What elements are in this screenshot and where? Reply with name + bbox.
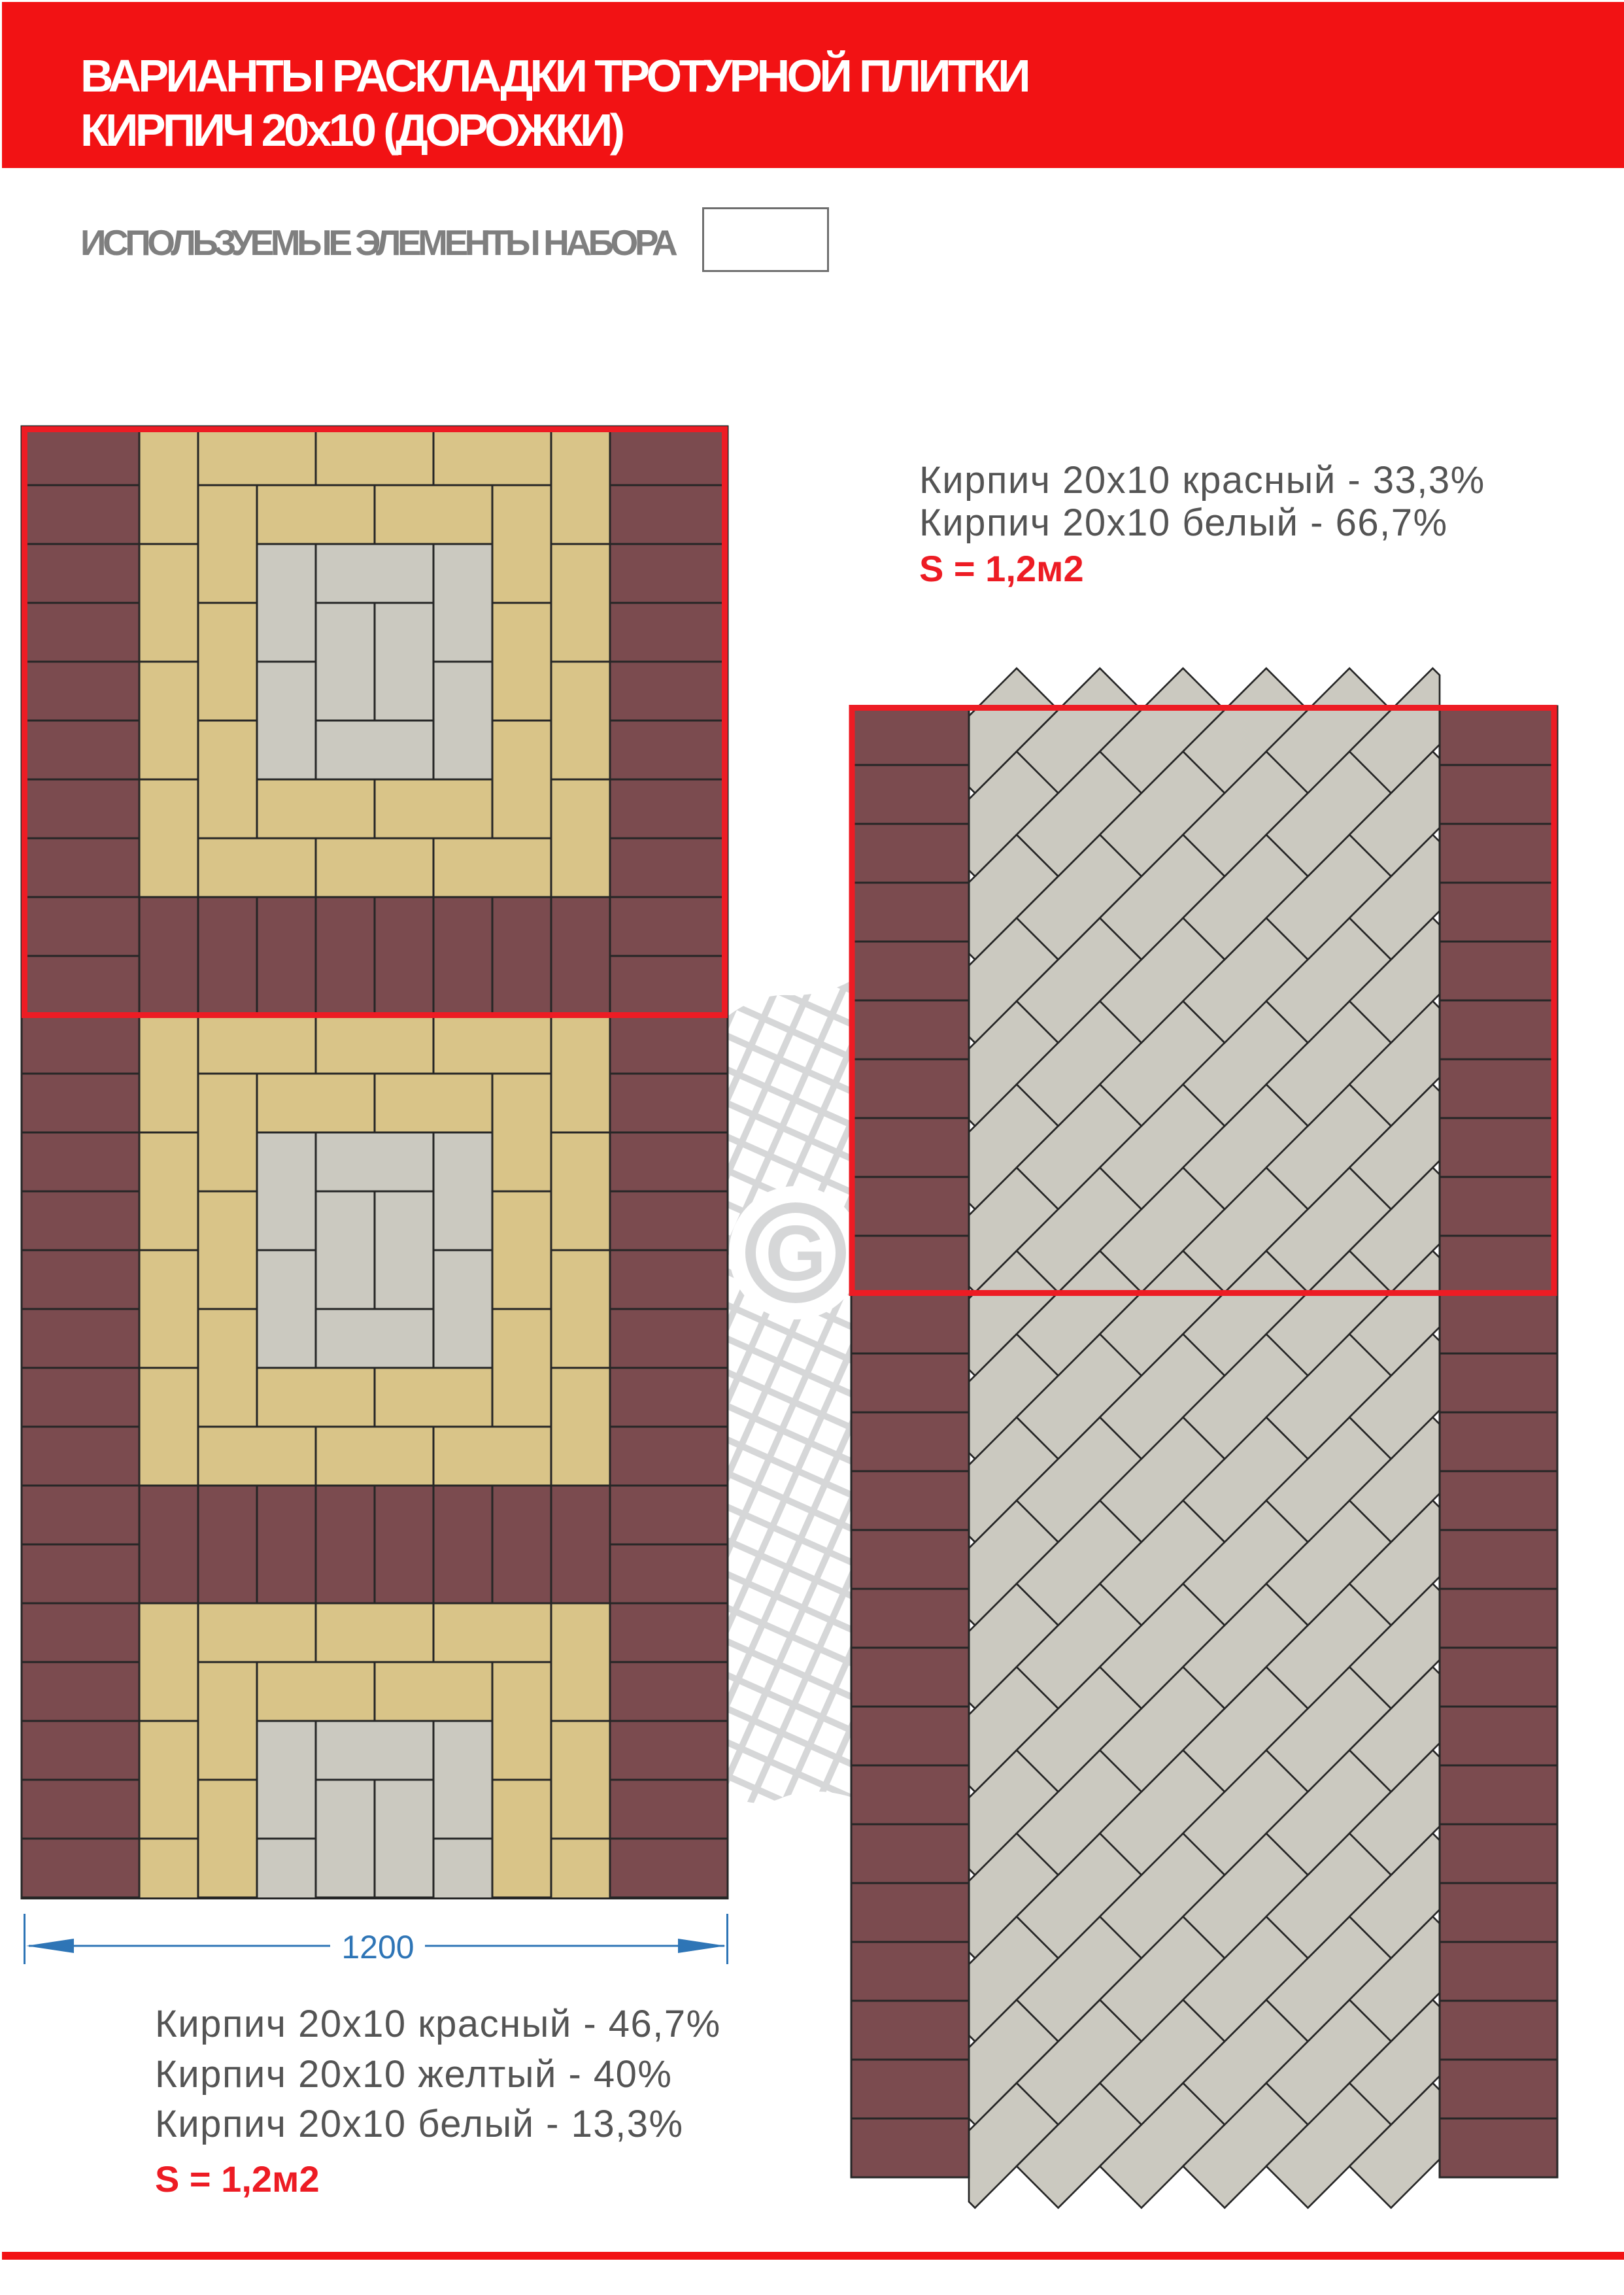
- svg-text:1200: 1200: [341, 1929, 414, 1965]
- svg-text:G: G: [765, 1210, 826, 1297]
